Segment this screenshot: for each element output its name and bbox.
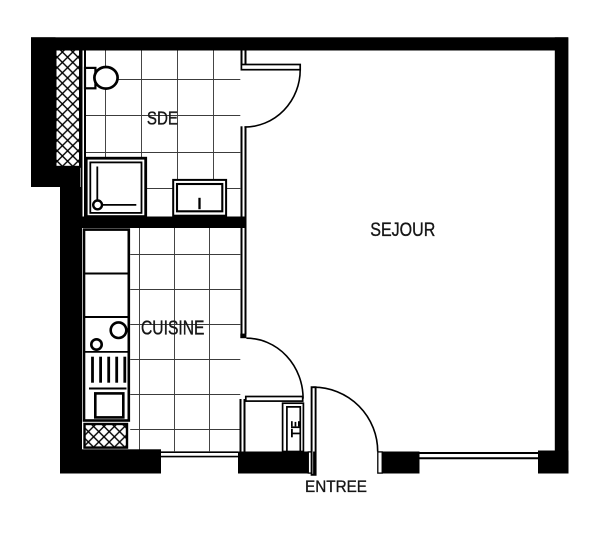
svg-text:CUISINE: CUISINE <box>141 318 205 340</box>
svg-text:SEJOUR: SEJOUR <box>370 219 435 241</box>
svg-text:ENTREE: ENTREE <box>305 477 367 496</box>
svg-text:SDE: SDE <box>147 108 178 129</box>
